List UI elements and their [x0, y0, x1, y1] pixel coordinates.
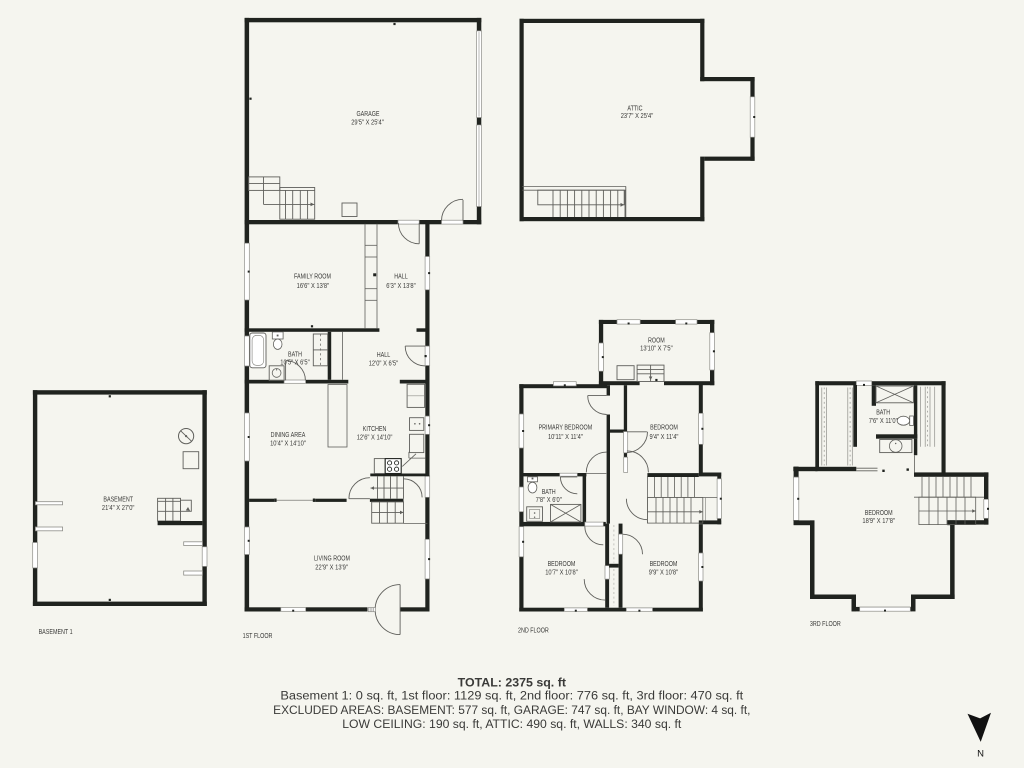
svg-text:TOTAL: 2375 sq. ft: TOTAL: 2375 sq. ft — [458, 676, 566, 690]
svg-text:10'11" X 11'4": 10'11" X 11'4" — [548, 433, 583, 441]
svg-text:10'5" X 6'5": 10'5" X 6'5" — [280, 359, 310, 367]
svg-text:ROOM: ROOM — [648, 337, 665, 345]
svg-text:EXCLUDED AREAS: BASEMENT: 577: EXCLUDED AREAS: BASEMENT: 577 sq. ft, GA… — [273, 703, 750, 717]
svg-text:6'3" X 13'8": 6'3" X 13'8" — [386, 282, 416, 290]
svg-text:10'7" X 10'8": 10'7" X 10'8" — [545, 569, 578, 577]
svg-text:23'7" X 25'4": 23'7" X 25'4" — [621, 112, 654, 120]
svg-text:BATH: BATH — [876, 409, 890, 417]
svg-text:BATH: BATH — [542, 488, 556, 496]
svg-text:BEDROOM: BEDROOM — [650, 560, 678, 568]
svg-text:22'9" X 13'9": 22'9" X 13'9" — [315, 564, 348, 572]
svg-text:16'6" X 13'8": 16'6" X 13'8" — [297, 282, 330, 290]
svg-text:PRIMARY BEDROOM: PRIMARY BEDROOM — [539, 424, 593, 432]
svg-text:N: N — [977, 749, 984, 760]
svg-text:Basement 1: 0 sq. ft, 1st floo: Basement 1: 0 sq. ft, 1st floor: 1129 sq… — [280, 689, 743, 703]
svg-text:21'4" X 27'0": 21'4" X 27'0" — [102, 504, 135, 512]
svg-text:7'6" X 11'0": 7'6" X 11'0" — [869, 417, 898, 425]
svg-text:KITCHEN: KITCHEN — [363, 425, 387, 433]
svg-text:1ST FLOOR: 1ST FLOOR — [243, 632, 273, 640]
svg-text:13'10" X 7'5": 13'10" X 7'5" — [640, 345, 673, 353]
svg-text:LIVING ROOM: LIVING ROOM — [314, 555, 350, 563]
svg-text:9'4" X 11'4": 9'4" X 11'4" — [650, 433, 679, 441]
svg-text:12'6" X 14'10": 12'6" X 14'10" — [357, 434, 393, 442]
svg-text:10'4" X 14'10": 10'4" X 14'10" — [270, 440, 306, 448]
svg-text:2ND FLOOR: 2ND FLOOR — [518, 627, 549, 635]
svg-text:3RD FLOOR: 3RD FLOOR — [810, 620, 841, 628]
svg-text:29'5" X 25'4": 29'5" X 25'4" — [351, 119, 384, 127]
svg-text:9'9" X 10'8": 9'9" X 10'8" — [649, 569, 679, 577]
svg-text:FAMILY ROOM: FAMILY ROOM — [294, 273, 331, 281]
svg-text:DINING AREA: DINING AREA — [271, 431, 306, 439]
svg-text:BASEMENT: BASEMENT — [103, 496, 133, 504]
svg-text:BEDROOM: BEDROOM — [650, 424, 678, 432]
svg-text:BATH: BATH — [288, 351, 302, 359]
svg-text:7'8" X 6'0": 7'8" X 6'0" — [536, 497, 563, 505]
svg-text:LOW CEILING: 190 sq. ft, ATTIC: LOW CEILING: 190 sq. ft, ATTIC: 490 sq. … — [342, 717, 682, 731]
svg-text:BEDROOM: BEDROOM — [548, 560, 576, 568]
svg-text:12'0" X 6'5": 12'0" X 6'5" — [369, 360, 399, 368]
svg-text:GARAGE: GARAGE — [356, 110, 380, 118]
svg-text:HALL: HALL — [394, 273, 408, 281]
svg-text:HALL: HALL — [377, 351, 391, 359]
svg-text:BASEMENT 1: BASEMENT 1 — [39, 628, 73, 636]
svg-text:18'9" X 17'8": 18'9" X 17'8" — [862, 517, 895, 525]
